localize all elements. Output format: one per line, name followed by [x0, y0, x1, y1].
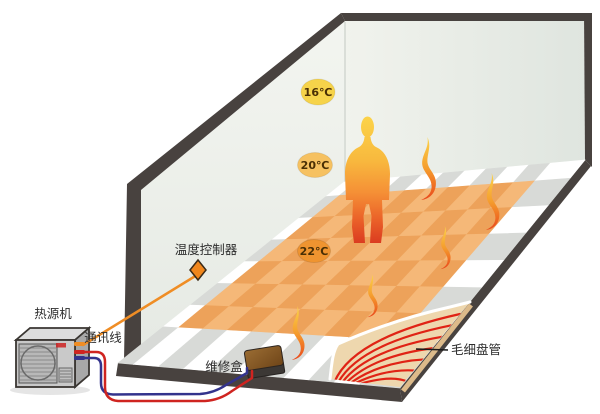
vent-grille-icon	[59, 368, 72, 382]
temp-badge-16c: 16℃	[301, 79, 335, 105]
label-thermostat-controller: 温度控制器	[175, 242, 238, 257]
frame-right-band	[584, 13, 592, 167]
temp-badge-16c-label: 16℃	[304, 86, 333, 99]
person-head	[361, 117, 374, 138]
diagram-canvas: 16℃ 20℃ 22℃ 温度控制器 热源机 通讯线 维修盒 毛细盘管	[0, 0, 600, 414]
temp-badge-20c-label: 20℃	[301, 159, 330, 172]
heat-source-unit-graphic	[10, 328, 90, 395]
temp-badge-22c: 22℃	[298, 240, 331, 263]
temp-badge-20c: 20℃	[298, 153, 333, 178]
capillary-coil-leader-line	[416, 349, 448, 350]
frame-top-band	[341, 13, 592, 21]
label-capillary-coil: 毛细盘管	[451, 342, 501, 357]
floor-heating-diagram: 16℃ 20℃ 22℃ 温度控制器 热源机 通讯线 维修盒 毛细盘管	[0, 0, 600, 414]
fan-grille-icon	[19, 344, 57, 383]
label-communication-line: 通讯线	[84, 330, 122, 345]
label-heat-source-unit: 热源机	[34, 306, 72, 321]
label-service-box: 维修盒	[205, 359, 243, 374]
brand-mark	[56, 343, 66, 348]
temp-badge-22c-label: 22℃	[300, 245, 329, 258]
service-box-graphic	[244, 345, 285, 378]
